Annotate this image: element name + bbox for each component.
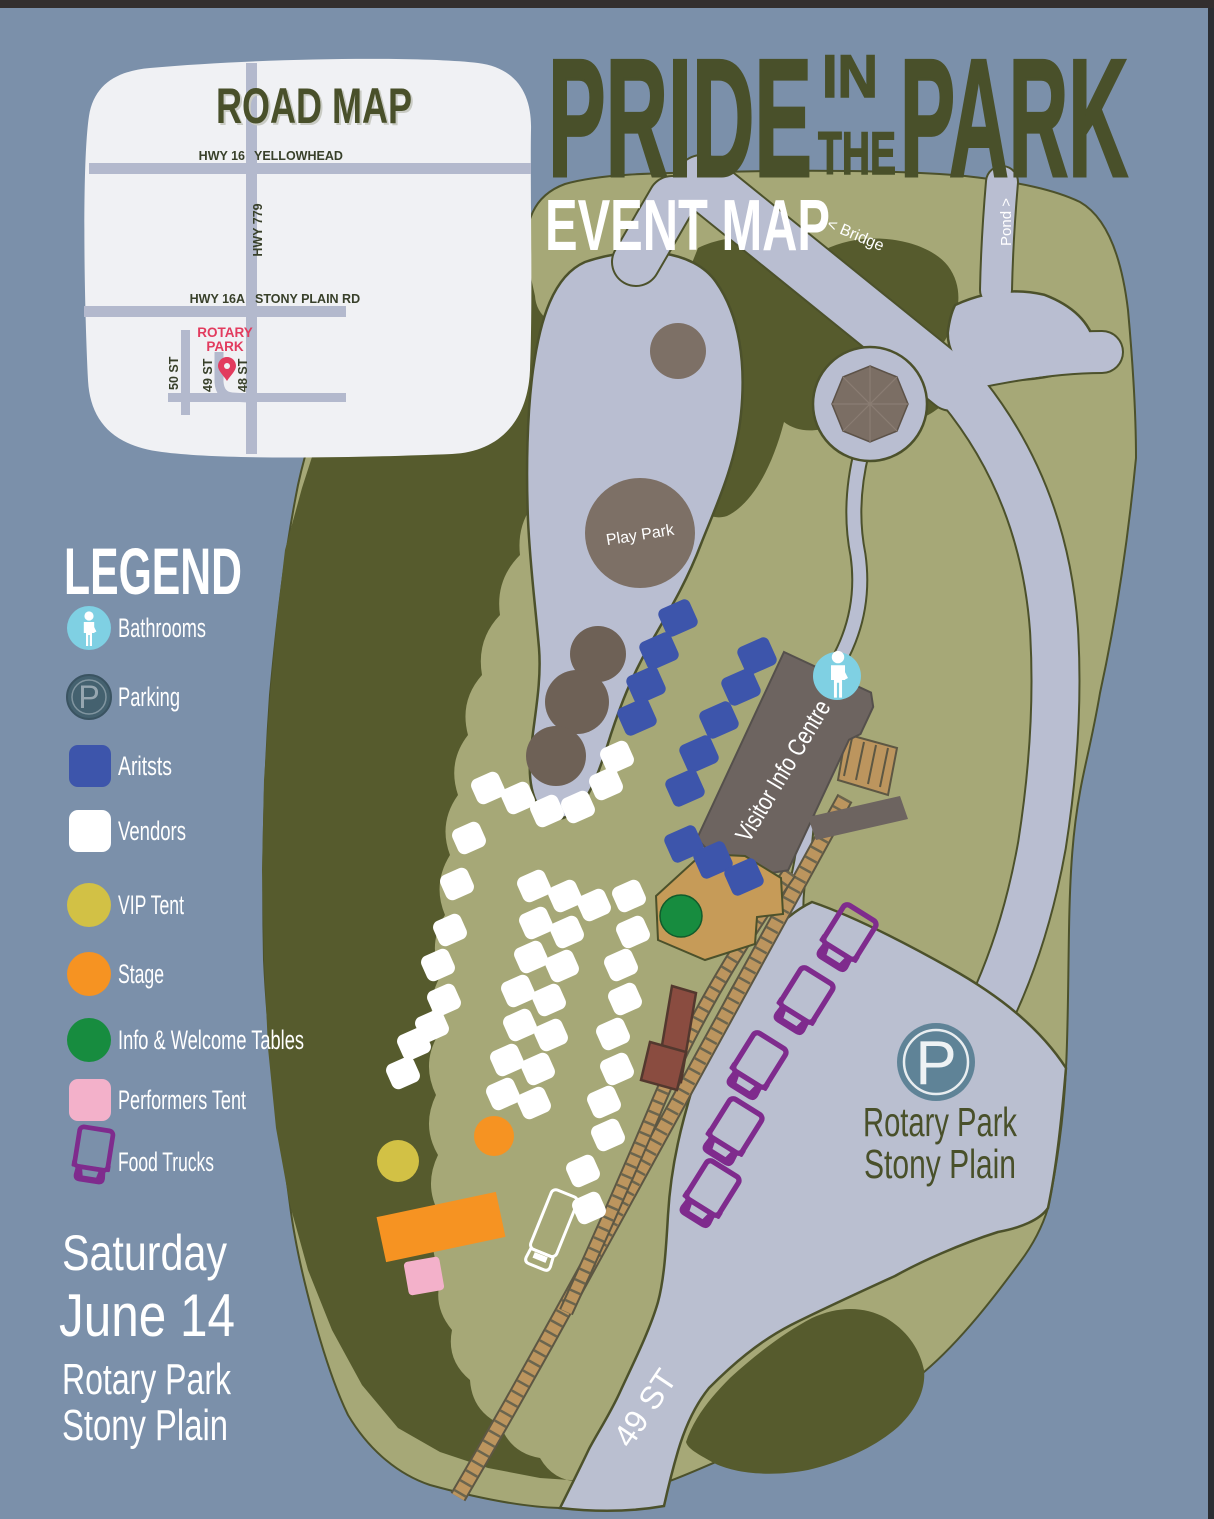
svg-text:Performers Tent: Performers Tent [118,1085,246,1115]
svg-text:Bathrooms: Bathrooms [118,613,206,643]
svg-text:48 ST: 48 ST [236,358,250,392]
svg-text:EVENT MAP: EVENT MAP [545,186,830,266]
svg-text:P: P [915,1029,956,1098]
svg-text:Info & Welcome Tables: Info & Welcome Tables [118,1025,304,1055]
svg-text:Saturday: Saturday [62,1225,227,1281]
svg-text:Stage: Stage [118,959,164,989]
svg-text:ROAD MAP: ROAD MAP [216,78,412,134]
svg-text:PARK: PARK [900,24,1128,212]
svg-text:VIP Tent: VIP Tent [118,890,184,920]
svg-text:Vendors: Vendors [118,816,186,846]
svg-text:50 ST: 50 ST [167,356,181,390]
svg-text:P: P [78,679,99,715]
svg-text:STONY PLAIN RD: STONY PLAIN RD [255,292,360,306]
svg-text:Stony Plain: Stony Plain [864,1141,1016,1187]
svg-text:49 ST: 49 ST [201,358,215,392]
svg-text:Rotary Park: Rotary Park [863,1099,1017,1145]
svg-text:LEGEND: LEGEND [64,534,242,608]
svg-text:IN: IN [822,43,878,110]
svg-text:Parking: Parking [118,682,180,712]
svg-text:June 14: June 14 [59,1282,235,1349]
svg-text:HWY 16A: HWY 16A [190,292,245,306]
svg-text:Aritsts: Aritsts [118,751,172,781]
svg-text:Food Trucks: Food Trucks [118,1147,214,1177]
svg-text:PARK: PARK [206,339,244,354]
svg-text:Stony Plain: Stony Plain [62,1401,228,1450]
svg-text:ROTARY: ROTARY [197,325,253,340]
svg-text:THE: THE [818,120,896,187]
svg-text:YELLOWHEAD: YELLOWHEAD [254,149,343,163]
svg-text:PRIDE: PRIDE [548,24,812,212]
svg-text:HWY 779: HWY 779 [251,203,265,256]
svg-text:Rotary Park: Rotary Park [62,1355,232,1404]
svg-text:HWY 16: HWY 16 [199,149,245,163]
